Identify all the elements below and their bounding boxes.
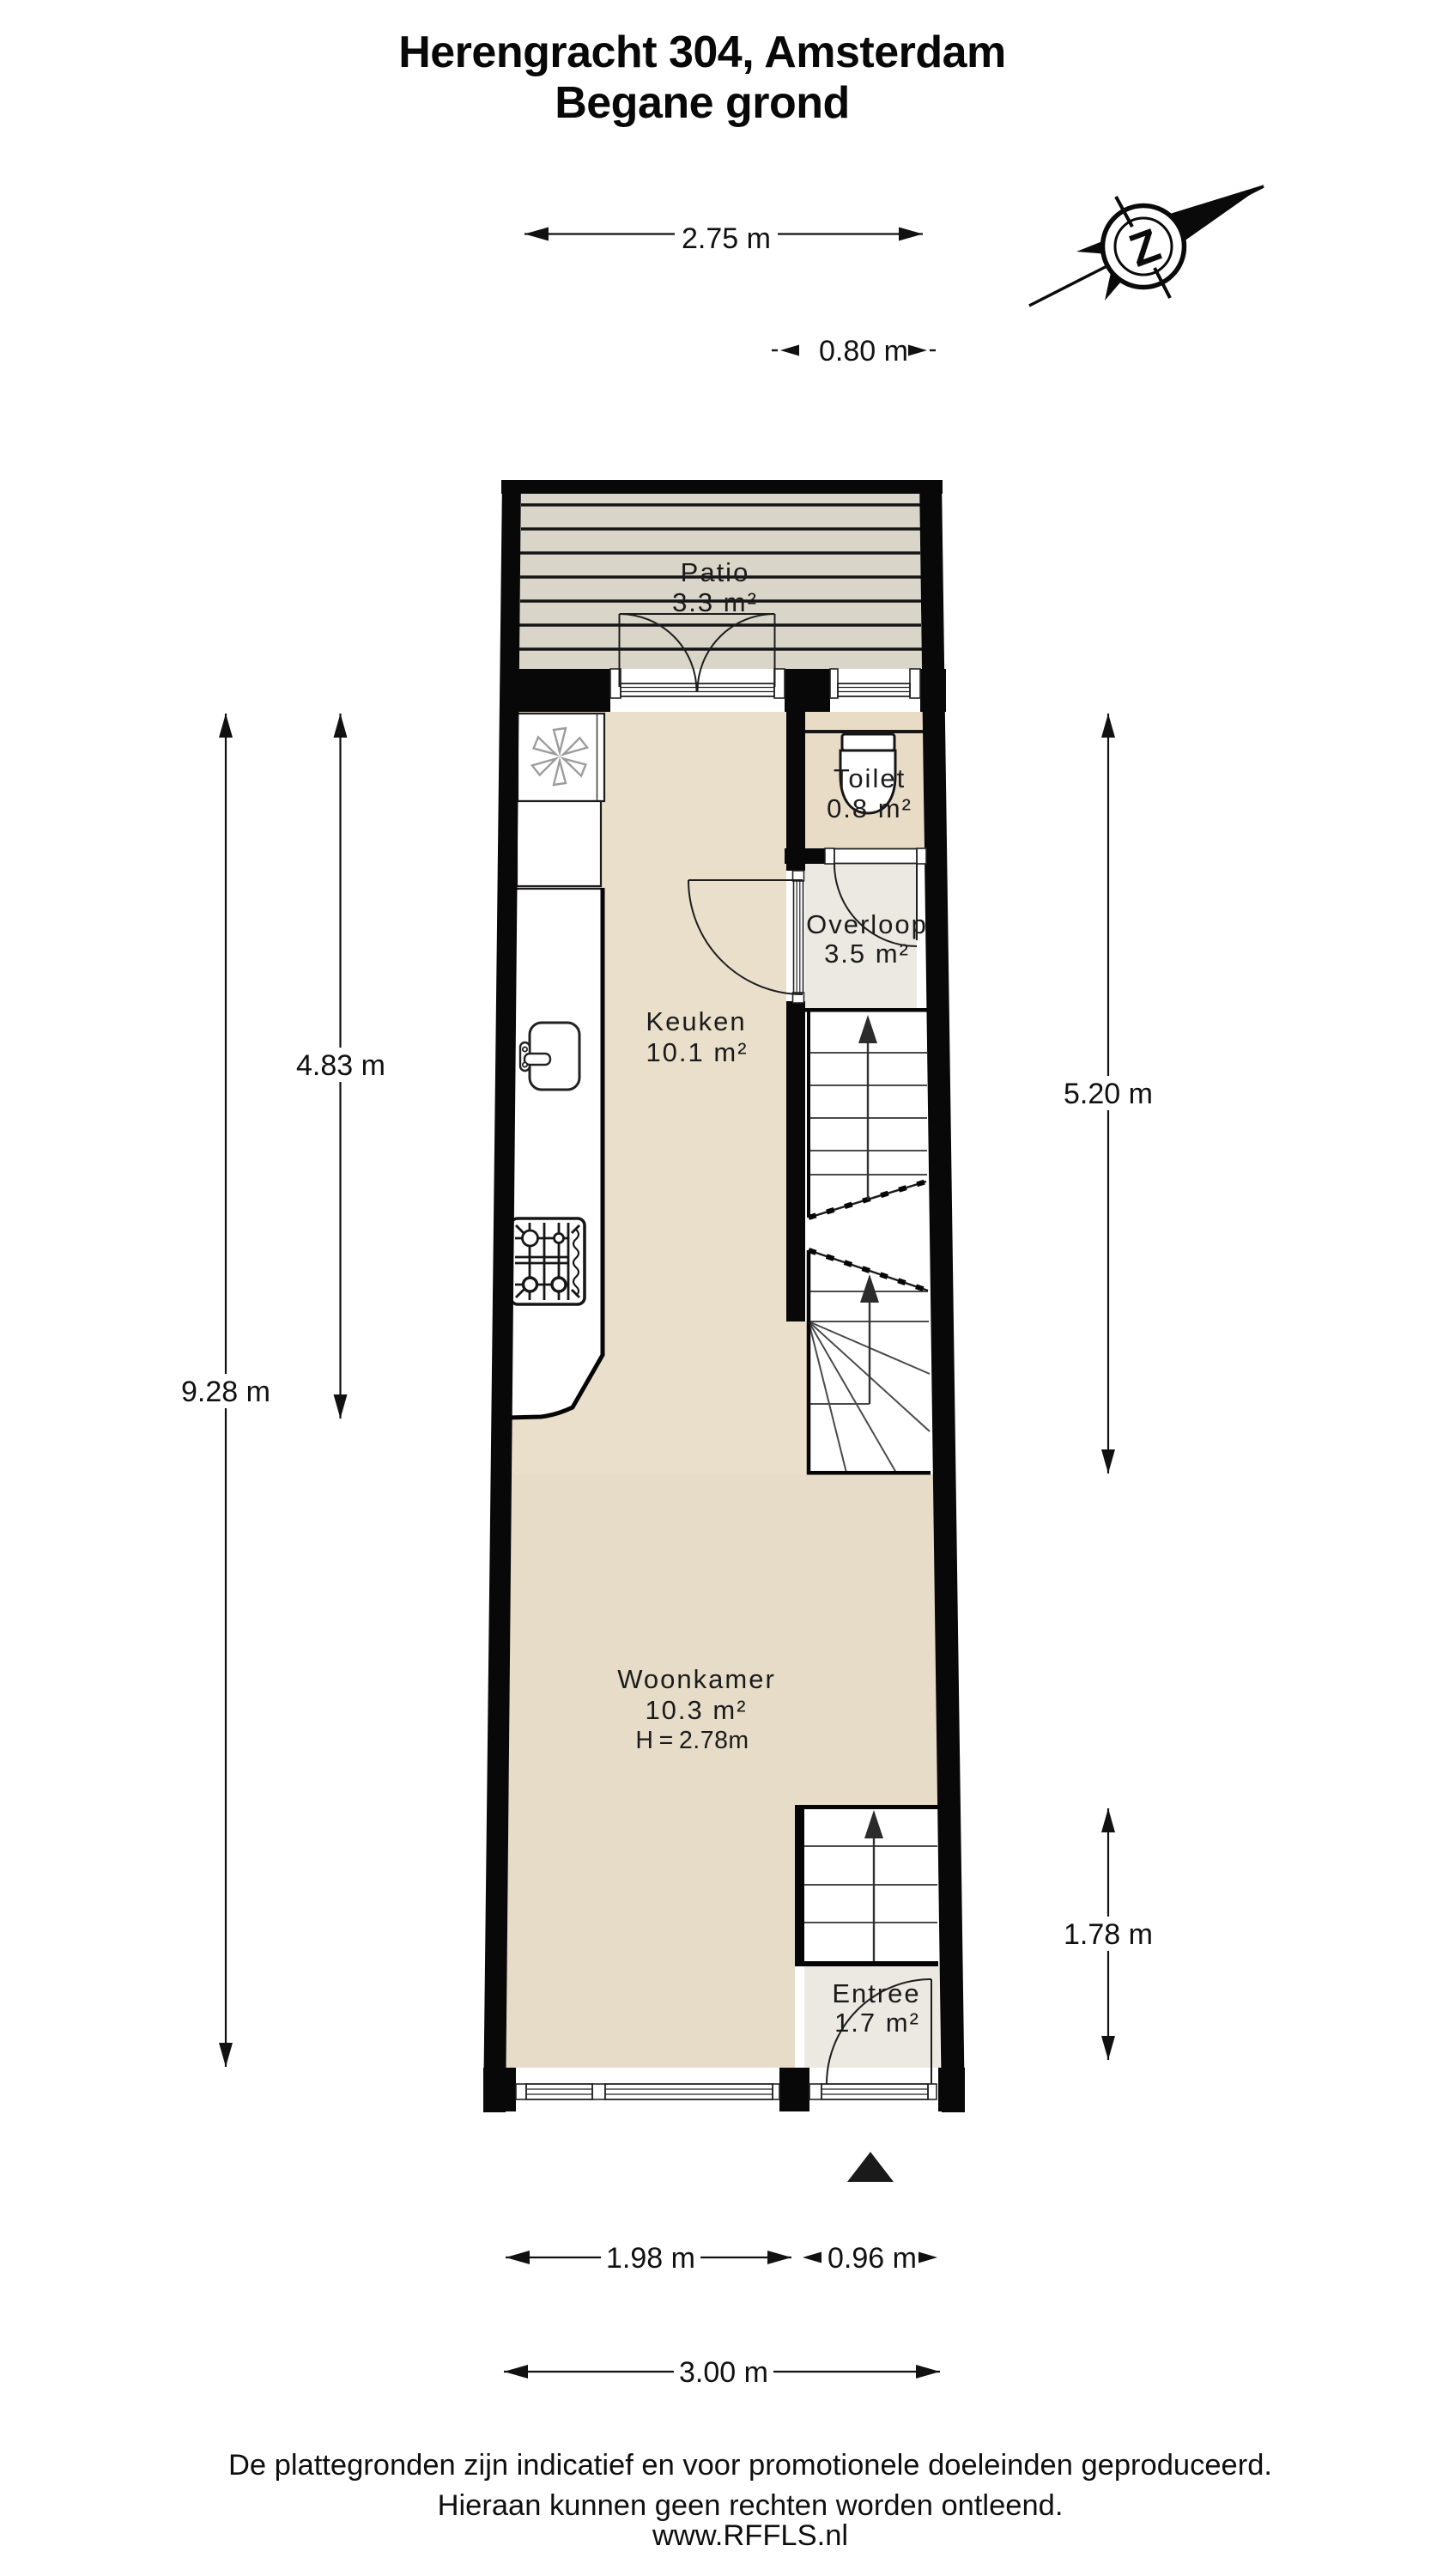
svg-text:1.78 m: 1.78 m [1064, 1918, 1153, 1951]
svg-text:9.28 m: 9.28 m [181, 1376, 270, 1408]
svg-text:Toilet: Toilet [834, 763, 906, 793]
svg-text:3.5 m²: 3.5 m² [824, 939, 910, 969]
svg-text:Patio: Patio [681, 557, 750, 587]
svg-text:0.8 m²: 0.8 m² [827, 793, 912, 823]
svg-text:10.3 m²: 10.3 m² [645, 1695, 747, 1725]
svg-text:10.1 m²: 10.1 m² [646, 1037, 748, 1067]
svg-text:Woonkamer: Woonkamer [617, 1664, 776, 1694]
svg-text:0.80 m: 0.80 m [819, 335, 908, 368]
svg-text:H = 2.78m: H = 2.78m [635, 1727, 749, 1754]
svg-text:Herengracht 304, Amsterdam: Herengracht 304, Amsterdam [398, 27, 1006, 77]
svg-text:2.75 m: 2.75 m [682, 222, 771, 255]
svg-text:Overloop: Overloop [806, 909, 928, 939]
svg-text:5.20 m: 5.20 m [1064, 1078, 1153, 1110]
svg-text:4.83 m: 4.83 m [296, 1049, 385, 1082]
svg-text:3.00 m: 3.00 m [679, 2356, 768, 2389]
svg-text:Hieraan kunnen geen rechten wo: Hieraan kunnen geen rechten worden ontle… [438, 2489, 1064, 2522]
svg-text:0.96 m: 0.96 m [828, 2242, 917, 2275]
svg-text:1.98 m: 1.98 m [606, 2242, 695, 2275]
svg-text:1.7 m²: 1.7 m² [834, 2008, 920, 2038]
svg-text:www.RFFLS.nl: www.RFFLS.nl [652, 2519, 848, 2552]
svg-text:De plattegronden zijn indicati: De plattegronden zijn indicatief en voor… [228, 2449, 1272, 2482]
svg-text:Keuken: Keuken [646, 1006, 746, 1036]
svg-text:Entree: Entree [832, 1978, 920, 2008]
svg-text:Begane grond: Begane grond [555, 78, 850, 128]
svg-text:3.3 m²: 3.3 m² [672, 587, 758, 617]
